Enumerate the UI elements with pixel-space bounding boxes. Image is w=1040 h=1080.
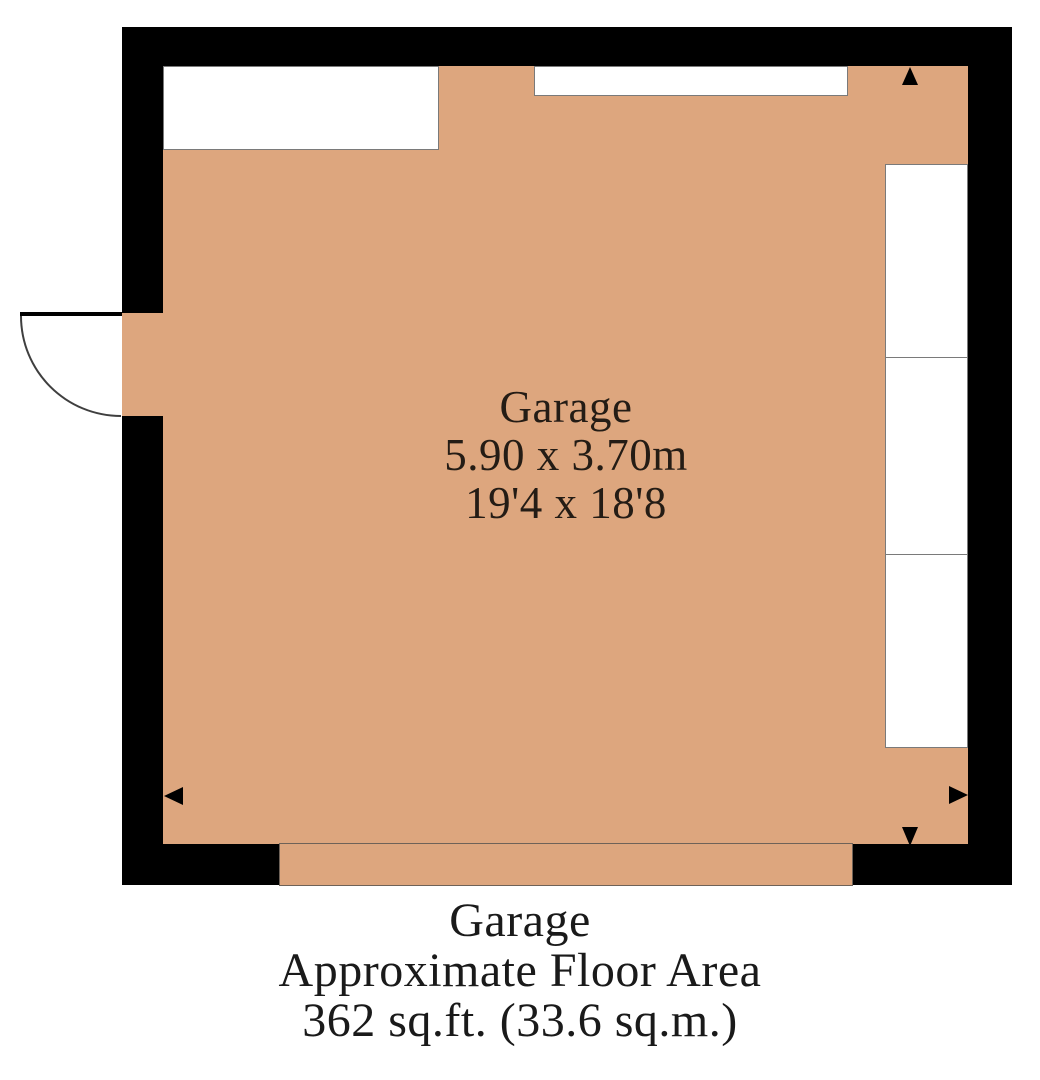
top-middle-recess [534, 66, 848, 96]
caption-area: 362 sq.ft. (33.6 sq.m.) [0, 996, 1040, 1046]
arrow-right-icon [949, 786, 968, 804]
room-name: Garage [316, 383, 816, 431]
caption: Garage Approximate Floor Area 362 sq.ft.… [0, 896, 1040, 1046]
top-left-recess [163, 66, 439, 150]
room-dimensions-imperial: 19'4 x 18'8 [316, 479, 816, 527]
recess-divider [886, 554, 967, 555]
room-dimensions-metric: 5.90 x 3.70m [316, 431, 816, 479]
floorplan-page: Garage 5.90 x 3.70m 19'4 x 18'8 Garage A… [0, 0, 1040, 1080]
caption-subtitle: Approximate Floor Area [0, 946, 1040, 996]
door-leaf-icon [20, 312, 122, 316]
door-opening [122, 313, 163, 416]
room-label: Garage 5.90 x 3.70m 19'4 x 18'8 [316, 383, 816, 527]
recess-divider [886, 357, 967, 358]
door-swing-arc-icon [20, 316, 121, 417]
caption-title: Garage [0, 896, 1040, 946]
arrow-left-icon [164, 787, 183, 805]
arrow-down-icon [902, 827, 918, 846]
arrow-up-icon [902, 67, 918, 85]
right-recess [885, 164, 968, 748]
garage-door-opening [279, 843, 853, 886]
